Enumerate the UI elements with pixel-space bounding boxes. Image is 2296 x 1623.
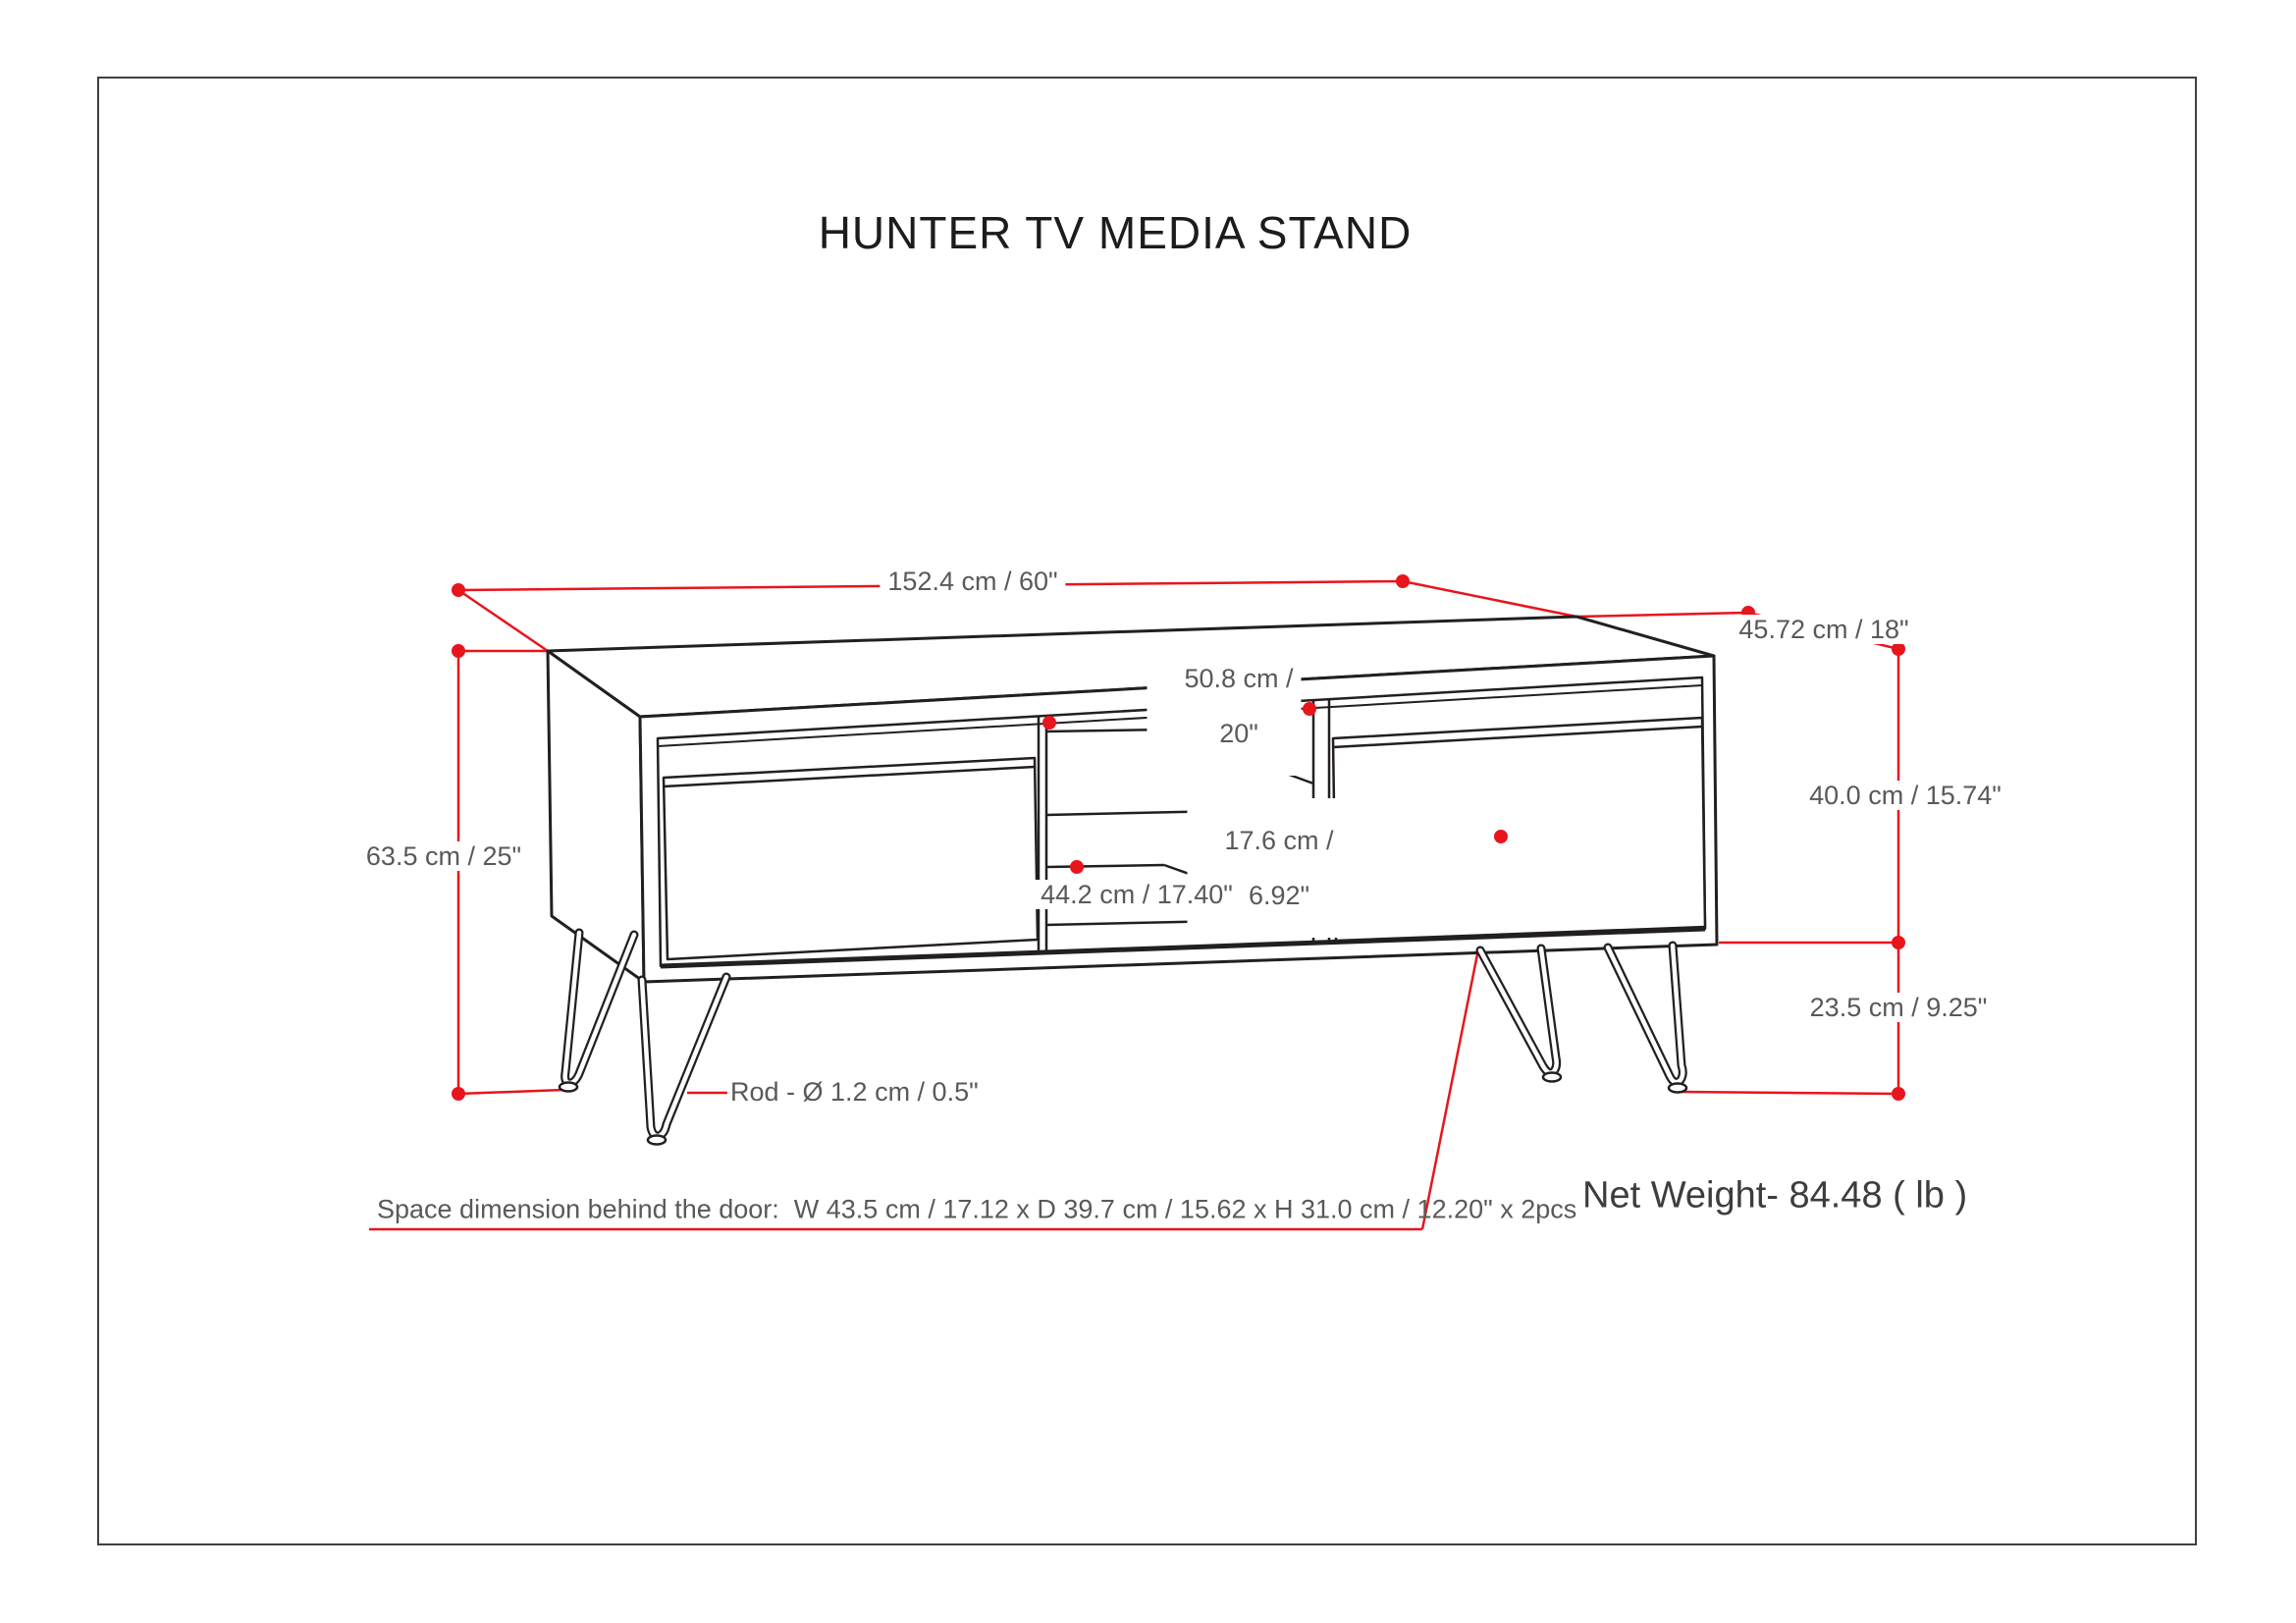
width-leader-right bbox=[1403, 581, 1576, 617]
rod-diameter-label: Rod - Ø 1.2 cm / 0.5" bbox=[730, 1078, 979, 1106]
front-left-foot bbox=[648, 1136, 666, 1145]
leg-height-label: 23.5 cm / 9.25" bbox=[1802, 993, 1996, 1022]
opening-width-label: 50.8 cm / 20" bbox=[1147, 636, 1301, 776]
leg-bottom-leader bbox=[1682, 1092, 1898, 1094]
right-door-panel bbox=[1333, 718, 1705, 941]
overall-depth-label: 45.72 cm / 18" bbox=[1731, 615, 1916, 644]
rear-right-foot bbox=[1543, 1073, 1561, 1082]
net-weight-label: Net Weight- 84.48 ( lb ) bbox=[1582, 1175, 1967, 1217]
height-leader-bottom bbox=[458, 1090, 563, 1094]
width-leader-left bbox=[458, 590, 548, 651]
door-space-footnote: Space dimension behind the door: W 43.5 … bbox=[377, 1195, 1576, 1225]
rear-left-foot bbox=[560, 1083, 577, 1092]
opening-width-line1: 50.8 cm / bbox=[1184, 664, 1293, 693]
shelf-depth-label: 44.2 cm / 17.40" bbox=[1033, 880, 1241, 909]
left-door-panel bbox=[664, 758, 1038, 959]
depth-leader bbox=[1576, 613, 1748, 617]
shelf-height-line2: 6.92" bbox=[1249, 881, 1309, 910]
overall-height-label: 63.5 cm / 25" bbox=[358, 841, 529, 871]
spec-sheet-page: HUNTER TV MEDIA STAND bbox=[0, 0, 2296, 1623]
furniture-line-drawing bbox=[0, 0, 2296, 1623]
shelf-height-line1: 17.6 cm / bbox=[1224, 826, 1333, 855]
front-left-leg bbox=[642, 977, 726, 1136]
overall-width-label: 152.4 cm / 60" bbox=[880, 567, 1065, 596]
shelf-height-label: 17.6 cm / 6.92" bbox=[1187, 798, 1341, 938]
front-right-foot bbox=[1669, 1084, 1686, 1093]
cabinet-height-label: 40.0 cm / 15.74" bbox=[1801, 781, 2009, 810]
opening-width-line2: 20" bbox=[1219, 719, 1258, 748]
